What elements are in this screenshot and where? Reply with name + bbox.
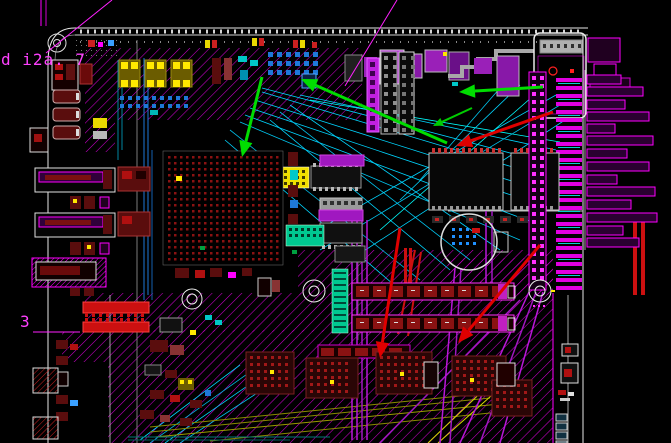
bga-ball-grid bbox=[192, 174, 195, 177]
memory-chip-pads bbox=[324, 362, 327, 365]
pin-strip-pins bbox=[540, 188, 544, 192]
cap-row-marks bbox=[520, 218, 524, 221]
bga-ball-grid bbox=[246, 222, 249, 225]
bga-ball-grid bbox=[258, 210, 261, 213]
bga-ball-grid bbox=[234, 180, 237, 183]
memory-chip-pads bbox=[250, 384, 253, 387]
memory-chip-pads bbox=[470, 360, 473, 363]
component bbox=[56, 395, 68, 404]
bga-ball-grid bbox=[222, 186, 225, 189]
pad-array-blue bbox=[286, 70, 291, 75]
dimm-segments bbox=[441, 318, 454, 329]
pin-strip-pins bbox=[532, 220, 536, 224]
pin-strip-pins bbox=[540, 100, 544, 104]
component bbox=[170, 345, 184, 355]
bga-ball-grid bbox=[234, 186, 237, 189]
component bbox=[56, 340, 68, 349]
connector-teal-grid bbox=[313, 228, 316, 231]
chip-pins-top bbox=[456, 148, 459, 153]
bga-ball-grid bbox=[192, 168, 195, 171]
component bbox=[470, 378, 474, 382]
bga-ball-grid bbox=[204, 240, 207, 243]
board-top-edge-ticks bbox=[353, 30, 355, 34]
pin-header-teeth bbox=[141, 313, 144, 317]
bga-ball-grid bbox=[234, 216, 237, 219]
bga-ball-grid bbox=[186, 258, 189, 261]
memory-chip-pads bbox=[394, 356, 397, 359]
cap-olive-pads bbox=[183, 80, 190, 87]
chip-pins-bottom bbox=[492, 206, 495, 210]
top-via-row bbox=[168, 41, 169, 43]
pin-strip-pins bbox=[532, 180, 536, 184]
corner-via-dots bbox=[91, 55, 92, 56]
pin-strip-pins bbox=[540, 164, 544, 168]
connector-pads bbox=[384, 83, 388, 87]
bga-ball-grid bbox=[204, 198, 207, 201]
bga-ball-grid bbox=[210, 222, 213, 225]
cap-barrel bbox=[53, 90, 80, 103]
chip-pins-bottom bbox=[456, 206, 459, 210]
component bbox=[73, 199, 77, 203]
edge-pin-traces bbox=[558, 115, 580, 116]
top-via-row bbox=[184, 41, 185, 43]
board-top-edge-ticks bbox=[213, 30, 215, 34]
bga-ball-grid bbox=[198, 240, 201, 243]
corner-via-dots bbox=[116, 40, 117, 41]
bga-ball-grid bbox=[234, 162, 237, 165]
bga-ball-grid bbox=[192, 246, 195, 249]
board-top-edge-ticks bbox=[381, 30, 383, 34]
green-arrow-small bbox=[442, 108, 472, 122]
chip-pins-top bbox=[486, 148, 489, 153]
connector-teal-grid bbox=[313, 234, 316, 237]
top-via-row bbox=[520, 41, 521, 43]
board-top-edge-ticks bbox=[423, 30, 425, 34]
dimm-marks bbox=[479, 322, 483, 323]
bga-ball-grid bbox=[252, 252, 255, 255]
bga-ball-grid bbox=[276, 234, 279, 237]
pin-strip-pins bbox=[540, 140, 544, 144]
battery-pads bbox=[473, 235, 476, 238]
connector-pads bbox=[402, 56, 406, 60]
bga-ball-grid bbox=[198, 198, 201, 201]
connector-teal-grid bbox=[301, 228, 304, 231]
bga-ball-grid bbox=[174, 210, 177, 213]
corner-via-dots bbox=[106, 55, 107, 56]
ic-pads bbox=[325, 187, 328, 191]
ic-pads bbox=[337, 187, 340, 191]
memory-chip-pads bbox=[401, 356, 404, 359]
bga-ball-grid bbox=[216, 252, 219, 255]
dimm-marks bbox=[445, 290, 449, 291]
memory-chip-pads bbox=[250, 363, 253, 366]
bga-ball-grid bbox=[246, 156, 249, 159]
component bbox=[292, 250, 297, 254]
top-via-row bbox=[408, 41, 409, 43]
ic-pads bbox=[343, 187, 346, 191]
bga-ball-grid bbox=[276, 252, 279, 255]
red-arrow-head bbox=[456, 134, 473, 147]
top-via-row bbox=[288, 41, 289, 43]
connector-teal-slots bbox=[334, 326, 346, 328]
chip-pins-bottom bbox=[520, 206, 523, 210]
edge-pin-traces bbox=[558, 227, 580, 228]
bga-ball-grid bbox=[168, 156, 171, 159]
bga-ball-grid bbox=[168, 252, 171, 255]
bga-ball-grid bbox=[168, 240, 171, 243]
pin-strip-pins bbox=[532, 244, 536, 248]
offboard-bar bbox=[587, 162, 649, 171]
pin-strip-pins bbox=[540, 172, 544, 176]
memory-chip-pads bbox=[250, 370, 253, 373]
pad-array-blue bbox=[286, 61, 291, 66]
component bbox=[150, 390, 164, 399]
component bbox=[145, 365, 161, 375]
bga-ball-grid bbox=[270, 168, 273, 171]
top-via-row bbox=[472, 41, 473, 43]
power-trace-red bbox=[633, 215, 637, 295]
bga-ball-grid bbox=[180, 198, 183, 201]
component bbox=[180, 418, 192, 426]
dimm-segments bbox=[390, 318, 403, 329]
memory-chip-pads bbox=[510, 405, 513, 408]
connector-pads bbox=[411, 83, 415, 87]
bga-ball-grid bbox=[222, 198, 225, 201]
component bbox=[252, 38, 257, 46]
pin-header-teeth bbox=[92, 313, 95, 317]
edge-pin-traces bbox=[558, 179, 580, 180]
memory-chip-pads bbox=[408, 356, 411, 359]
bga-ball-grid bbox=[198, 156, 201, 159]
top-via-row bbox=[536, 41, 537, 43]
connector-pads bbox=[411, 65, 415, 69]
bga-ball-grid bbox=[264, 174, 267, 177]
bga-ball-grid bbox=[168, 204, 171, 207]
dimm-marks bbox=[377, 290, 381, 291]
pin-strip-pins bbox=[532, 236, 536, 240]
bga-ball-grid bbox=[210, 174, 213, 177]
board-top-edge-ticks bbox=[269, 30, 271, 34]
connector-teal-slots bbox=[334, 308, 346, 310]
component bbox=[188, 380, 192, 384]
pad-array-blue bbox=[184, 96, 188, 100]
memory-chip-pads bbox=[345, 390, 348, 393]
memory-chip-pads bbox=[345, 369, 348, 372]
bga-ball-grid bbox=[180, 168, 183, 171]
board-top-edge-ticks bbox=[80, 30, 82, 34]
edge-pin-rows bbox=[556, 270, 582, 274]
bga-ball-grid bbox=[240, 192, 243, 195]
bga-ball-grid bbox=[246, 204, 249, 207]
component bbox=[238, 56, 247, 62]
bga-ball-grid bbox=[228, 174, 231, 177]
bga-ball-grid bbox=[204, 258, 207, 261]
usb-connector-tongue bbox=[45, 175, 91, 180]
pcb-canvas[interactable]: d i2a. 7 3 bbox=[0, 0, 671, 443]
bga-ball-grid bbox=[222, 258, 225, 261]
edge-pin-rows bbox=[556, 142, 582, 146]
bga-ball-grid bbox=[198, 258, 201, 261]
battery-pads bbox=[459, 235, 462, 238]
memory-chip-pads bbox=[285, 370, 288, 373]
board-top-edge-ticks bbox=[115, 30, 117, 34]
component bbox=[270, 370, 274, 374]
pin-header-teeth bbox=[113, 313, 116, 317]
edge-pin-traces bbox=[558, 99, 580, 100]
bga-ball-grid bbox=[222, 234, 225, 237]
bga-ball-grid bbox=[252, 246, 255, 249]
pin-header-teeth bbox=[92, 318, 95, 322]
bga-ball-grid bbox=[234, 222, 237, 225]
ic-gray bbox=[335, 246, 365, 262]
edge-pin-rows bbox=[556, 206, 582, 210]
edge-pin-traces bbox=[558, 243, 580, 244]
board-top-edge-ticks bbox=[472, 30, 474, 34]
bga-ball-grid bbox=[174, 198, 177, 201]
bga-ball-grid bbox=[216, 210, 219, 213]
memory-chip-pads bbox=[484, 374, 487, 377]
top-via-row bbox=[160, 41, 161, 43]
connector-pads bbox=[384, 65, 388, 69]
top-via-row bbox=[424, 41, 425, 43]
connector-purple-slots bbox=[370, 89, 375, 94]
memory-chip-pads bbox=[380, 377, 383, 380]
pin-strip-pins bbox=[540, 236, 544, 240]
pad-array-blue bbox=[136, 104, 140, 108]
bga-ball-grid bbox=[192, 156, 195, 159]
bga-ball-grid bbox=[228, 162, 231, 165]
dimm-marks bbox=[411, 322, 415, 323]
bga-ball-grid bbox=[240, 222, 243, 225]
memory-chip-pads bbox=[257, 384, 260, 387]
cap-small bbox=[556, 423, 567, 430]
component bbox=[140, 410, 154, 419]
bga-ball-grid bbox=[192, 222, 195, 225]
board-top-edge-ticks bbox=[521, 30, 523, 34]
battery-pads bbox=[452, 242, 455, 245]
cap-barrel bbox=[53, 108, 80, 121]
ic-yellow-grid bbox=[302, 182, 305, 185]
pin-strip-pins bbox=[532, 204, 536, 208]
bga-ball-grid bbox=[264, 216, 267, 219]
corner-via-dots bbox=[116, 55, 117, 56]
bga-ball-grid bbox=[258, 216, 261, 219]
component bbox=[250, 60, 258, 66]
connector-teal-grid bbox=[319, 228, 322, 231]
pad-array-blue bbox=[295, 61, 300, 66]
pad-array-blue bbox=[128, 104, 132, 108]
bga-ball-grid bbox=[276, 240, 279, 243]
bga-ball-grid bbox=[204, 216, 207, 219]
memory-chip-pads bbox=[271, 384, 274, 387]
board-top-edge-ticks bbox=[304, 30, 306, 34]
component bbox=[330, 380, 334, 384]
component bbox=[205, 315, 212, 320]
bga-ball-grid bbox=[174, 246, 177, 249]
pin-header-red bbox=[83, 302, 149, 313]
board-top-edge-ticks bbox=[437, 30, 439, 34]
top-via-row bbox=[200, 41, 201, 43]
component bbox=[560, 398, 570, 401]
connector-topright-body bbox=[540, 40, 582, 53]
ic-yellow-grid bbox=[284, 182, 287, 185]
pin-header-teeth bbox=[120, 318, 123, 322]
edge-pin-rows bbox=[556, 150, 582, 154]
top-via-row bbox=[176, 41, 177, 43]
cap-olive-pads bbox=[121, 62, 128, 69]
bga-ball-grid bbox=[228, 228, 231, 231]
connector-topright-pins bbox=[550, 44, 553, 48]
dimm-marks bbox=[394, 290, 398, 291]
chip-pins-bottom bbox=[480, 206, 483, 210]
bga-ball-grid bbox=[222, 210, 225, 213]
hole-mark-yellow bbox=[551, 290, 555, 292]
bga-ball-grid bbox=[174, 222, 177, 225]
bga-ball-grid bbox=[180, 234, 183, 237]
bga-ball-grid bbox=[174, 192, 177, 195]
bga-ball-grid bbox=[234, 258, 237, 261]
pad-array-blue bbox=[268, 70, 273, 75]
bga-ball-grid bbox=[186, 204, 189, 207]
board-note-text: d i2a. 7 bbox=[1, 50, 86, 69]
bga-ball-grid bbox=[216, 246, 219, 249]
bga-ball-grid bbox=[174, 162, 177, 165]
memory-chip-pads bbox=[324, 369, 327, 372]
cap-row-marks bbox=[435, 218, 439, 221]
memory-chip-pads bbox=[317, 376, 320, 379]
bga-ball-grid bbox=[276, 198, 279, 201]
bga-ball-grid bbox=[186, 198, 189, 201]
dimm-segments bbox=[373, 286, 386, 297]
dimm-marks bbox=[360, 322, 364, 323]
pin-strip-pins bbox=[532, 164, 536, 168]
bga-ball-grid bbox=[276, 162, 279, 165]
cap-olive-pads bbox=[147, 62, 154, 69]
bga-ball-grid bbox=[180, 228, 183, 231]
component bbox=[88, 40, 95, 47]
top-via-row bbox=[432, 41, 433, 43]
bga-ball-grid bbox=[210, 156, 213, 159]
top-via-row bbox=[272, 41, 273, 43]
bga-ball-grid bbox=[216, 240, 219, 243]
bga-ball-grid bbox=[264, 168, 267, 171]
memory-chip-pads bbox=[484, 388, 487, 391]
memory-chip-pads bbox=[517, 398, 520, 401]
highlight-marker-red bbox=[549, 67, 557, 75]
bga-ball-grid bbox=[186, 240, 189, 243]
pin-strip-pins bbox=[540, 220, 544, 224]
bga-ball-grid bbox=[264, 198, 267, 201]
offboard-bar bbox=[587, 112, 649, 121]
top-via-row bbox=[136, 41, 137, 43]
bga-ball-grid bbox=[252, 192, 255, 195]
bga-ball-grid bbox=[228, 246, 231, 249]
bga-ball-grid bbox=[168, 192, 171, 195]
component bbox=[497, 363, 515, 386]
cap-row-marks bbox=[503, 218, 507, 221]
bga-ball-grid bbox=[270, 252, 273, 255]
top-via-row bbox=[360, 41, 361, 43]
connector-pads bbox=[393, 128, 397, 132]
pad-array-blue bbox=[295, 52, 300, 57]
connector-pads bbox=[393, 101, 397, 105]
component bbox=[210, 268, 222, 277]
component bbox=[160, 318, 182, 332]
dimm-segments bbox=[356, 286, 369, 297]
edge-pin-rows bbox=[556, 102, 582, 106]
edge-pin-rows bbox=[556, 262, 582, 266]
bga-ball-grid bbox=[276, 258, 279, 261]
ic-pads bbox=[349, 187, 352, 191]
bga-ball-grid bbox=[210, 186, 213, 189]
cap-olive-pads bbox=[147, 80, 154, 87]
bga-ball-grid bbox=[210, 258, 213, 261]
memory-chip-pads bbox=[496, 391, 499, 394]
bga-ball-grid bbox=[246, 216, 249, 219]
component bbox=[212, 40, 217, 48]
pad-array-blue bbox=[168, 96, 172, 100]
component bbox=[58, 372, 68, 386]
pin-header-red bbox=[83, 322, 149, 332]
chip-pins-top bbox=[480, 148, 483, 153]
memory-chip-pads bbox=[257, 363, 260, 366]
pad-array-blue bbox=[277, 61, 282, 66]
bga-ball-grid bbox=[246, 240, 249, 243]
memory-chip-pads bbox=[257, 370, 260, 373]
usb-connector-cap bbox=[103, 215, 112, 234]
ic-purple-bar bbox=[320, 155, 364, 166]
bga-ball-grid bbox=[258, 258, 261, 261]
bga-ball-grid bbox=[198, 192, 201, 195]
memory-chip-pads bbox=[463, 374, 466, 377]
chip-pins-top bbox=[432, 148, 435, 153]
connector-teal-slots bbox=[334, 284, 346, 286]
pad-array-blue bbox=[144, 104, 148, 108]
bga-ball-grid bbox=[186, 234, 189, 237]
chip-pins-bottom bbox=[498, 206, 501, 210]
bga-ball-grid bbox=[270, 198, 273, 201]
bga-ball-grid bbox=[168, 174, 171, 177]
pin-strip-pins bbox=[540, 260, 544, 264]
bga-ball-grid bbox=[270, 246, 273, 249]
connector-pads bbox=[384, 92, 388, 96]
bga-ball-grid bbox=[252, 168, 255, 171]
memory-chip-pads bbox=[517, 384, 520, 387]
dimm-segments bbox=[355, 348, 368, 356]
memory-chip-pads bbox=[387, 363, 390, 366]
bga-ball-grid bbox=[180, 222, 183, 225]
bga-ball-grid bbox=[210, 180, 213, 183]
bga-ball-grid bbox=[258, 186, 261, 189]
board-top-edge-ticks bbox=[346, 30, 348, 34]
corner-via-dots bbox=[86, 40, 87, 41]
chip-pins-top bbox=[550, 148, 553, 153]
bga-ball-grid bbox=[240, 198, 243, 201]
bga-ball-grid bbox=[258, 192, 261, 195]
pin-strip-pins bbox=[532, 76, 536, 80]
battery-pads bbox=[466, 228, 469, 231]
bga-ball-grid bbox=[204, 168, 207, 171]
memory-chip-pads bbox=[278, 356, 281, 359]
pad-array-blue bbox=[176, 96, 180, 100]
memory-chip-pads bbox=[422, 356, 425, 359]
memory-chip-pads bbox=[463, 381, 466, 384]
memory-chip-pads bbox=[345, 376, 348, 379]
connector-pads bbox=[411, 74, 415, 78]
bga-ball-grid bbox=[228, 168, 231, 171]
memory-chip-pads bbox=[484, 360, 487, 363]
top-via-row bbox=[504, 41, 505, 43]
